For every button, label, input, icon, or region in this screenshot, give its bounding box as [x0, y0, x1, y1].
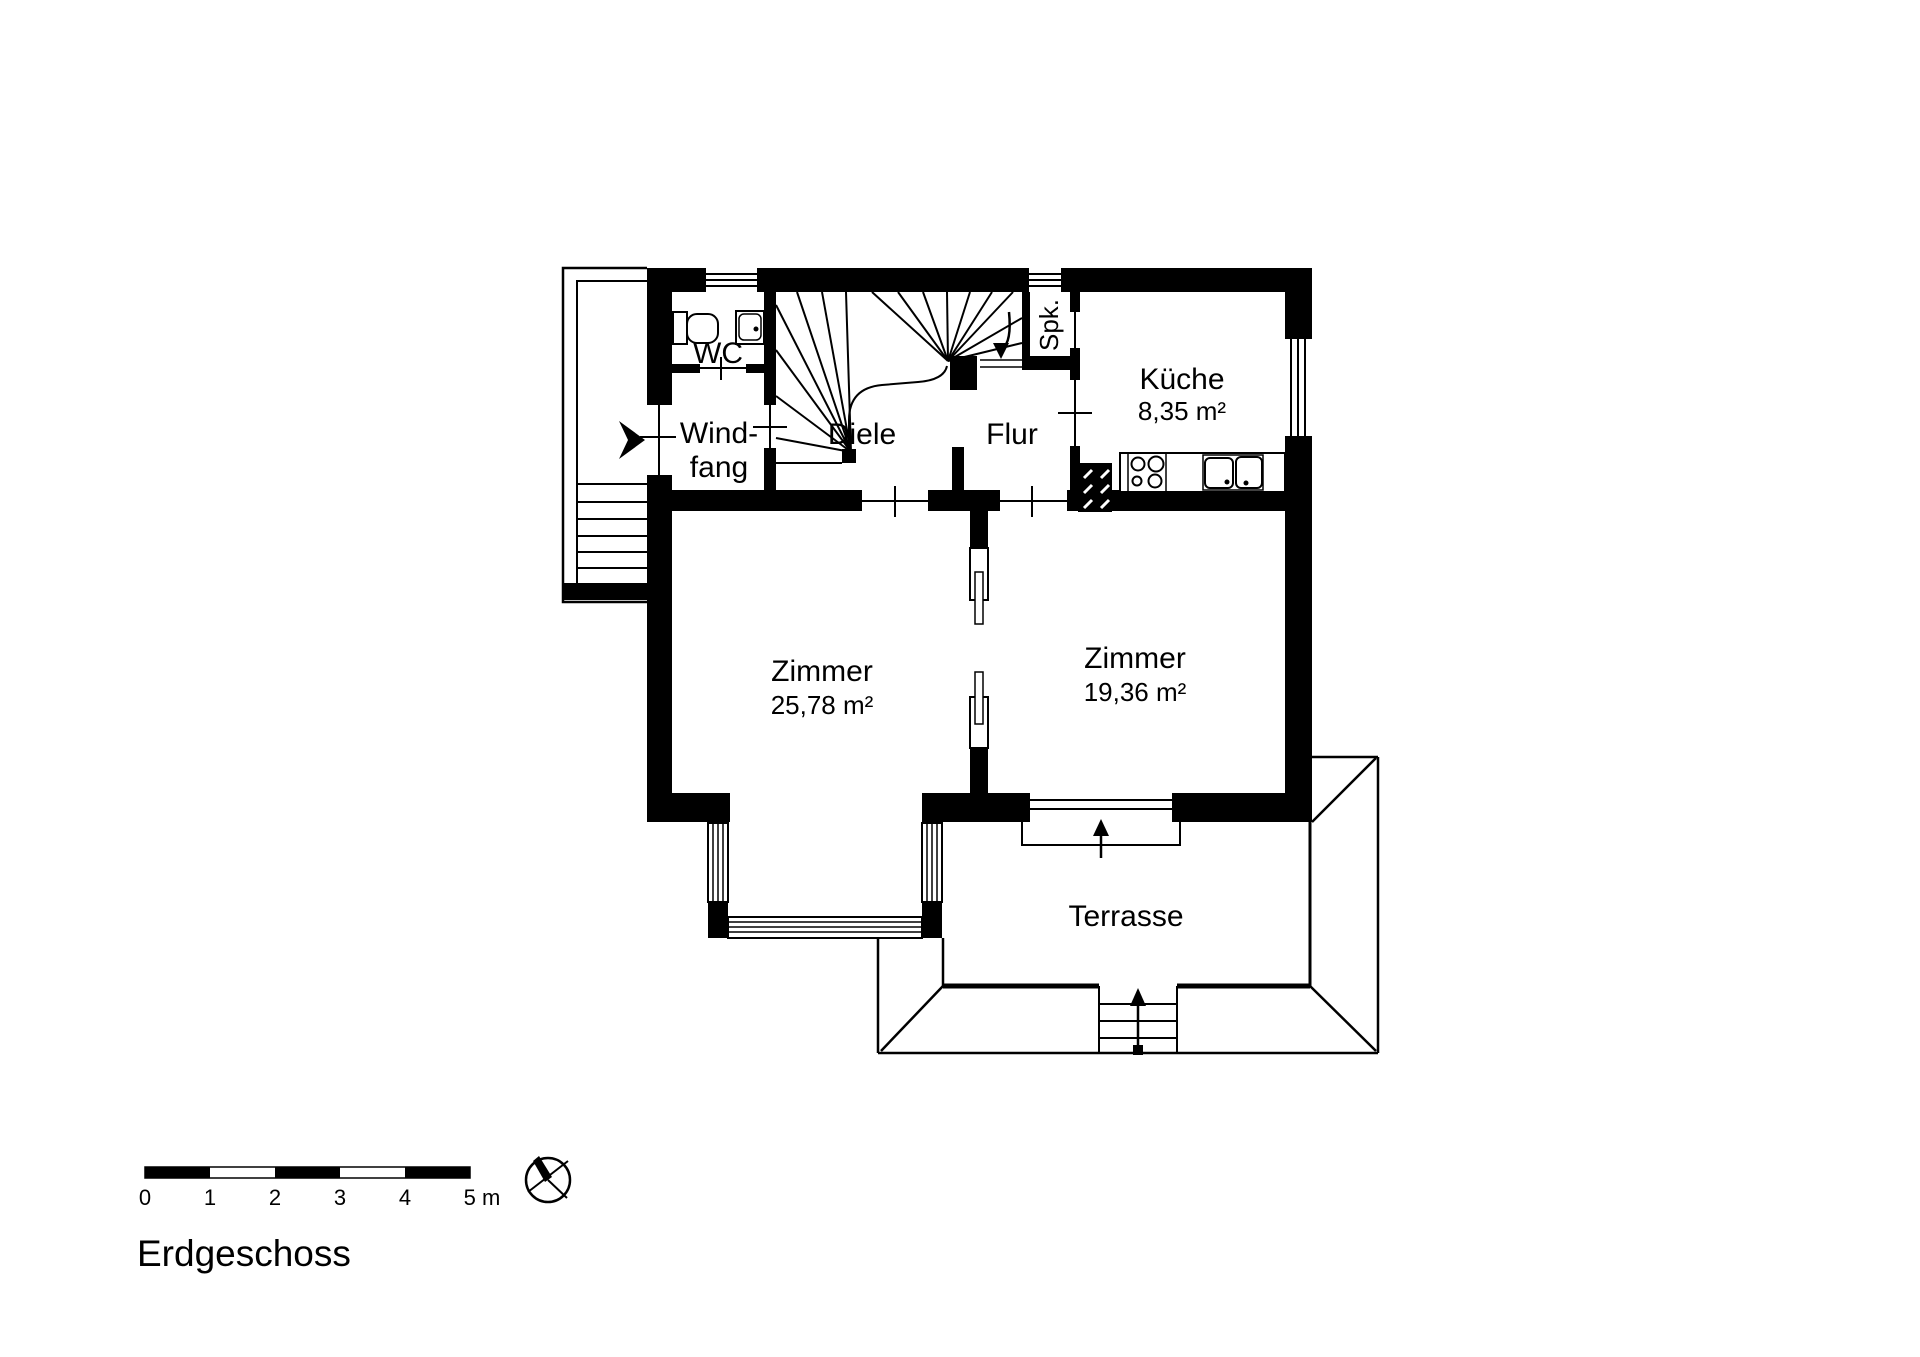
diele-flur-stub-wall — [952, 447, 964, 491]
room-divider-wall-bottom — [970, 748, 988, 793]
bay-corner-right — [922, 902, 942, 938]
room-divider-wall-top — [970, 510, 988, 548]
scale-tick-0: 0 — [139, 1185, 151, 1210]
door-spk-flur — [980, 360, 1022, 367]
south-wall-mid — [922, 793, 1030, 822]
room-labels: WC Wind- fang Diele Flur Spk. Küche 8,35… — [680, 299, 1227, 933]
scale-bar: 0 1 2 3 4 5 m — [139, 1167, 500, 1210]
pocket-door-leaf-lower — [975, 672, 983, 724]
spk-bottom-wall — [1022, 356, 1080, 370]
label-flur: Flur — [986, 418, 1038, 451]
spk-left-wall — [1022, 292, 1030, 356]
label-diele: Diele — [828, 418, 896, 451]
terrace-door — [1022, 793, 1180, 858]
stair-foot-wall — [950, 356, 977, 390]
area-zimmer-rechts: 19,36 m² — [1084, 677, 1187, 707]
interior-wall-band — [672, 490, 1312, 511]
scale-end-label: 5 m — [464, 1185, 501, 1210]
sliding-doors — [970, 548, 988, 748]
floorplan-page: WC Wind- fang Diele Flur Spk. Küche 8,35… — [0, 0, 1920, 1357]
area-kueche: 8,35 m² — [1138, 396, 1226, 426]
area-zimmer-links: 25,78 m² — [771, 690, 874, 720]
entrance-arrow-icon — [619, 421, 645, 459]
interior-staircase — [776, 292, 1022, 463]
stair-direction-arrow-icon — [993, 312, 1010, 359]
chimney-icon — [1078, 463, 1112, 512]
south-wall-right — [1172, 793, 1312, 822]
label-wc: WC — [693, 337, 743, 370]
floor-title: Erdgeschoss — [137, 1233, 351, 1274]
bay-window-right — [922, 823, 942, 902]
label-kueche: Küche — [1139, 363, 1224, 396]
bay-window-left — [708, 823, 728, 902]
bay-corner-left — [708, 902, 728, 938]
scale-tick-2: 2 — [269, 1185, 281, 1210]
south-wall-left — [647, 793, 730, 822]
label-zimmer-links: Zimmer — [771, 655, 873, 688]
scale-tick-1: 1 — [204, 1185, 216, 1210]
compass-icon — [526, 1156, 570, 1202]
pocket-door-leaf-upper — [975, 572, 983, 624]
label-spk: Spk. — [1034, 299, 1064, 351]
floor-plan-canvas: WC Wind- fang Diele Flur Spk. Küche 8,35… — [0, 0, 1920, 1357]
west-wall — [647, 268, 672, 793]
kitchen-unit — [1120, 453, 1285, 492]
scale-tick-3: 3 — [334, 1185, 346, 1210]
scale-tick-4: 4 — [399, 1185, 411, 1210]
door-flur-kueche — [1058, 380, 1092, 446]
label-windfang-2: fang — [690, 451, 748, 484]
windfang-diele-wall — [764, 292, 776, 490]
bay-window-bottom — [728, 917, 922, 938]
label-terrasse: Terrasse — [1068, 900, 1183, 933]
label-windfang-1: Wind- — [680, 417, 758, 450]
label-zimmer-rechts: Zimmer — [1084, 642, 1186, 675]
